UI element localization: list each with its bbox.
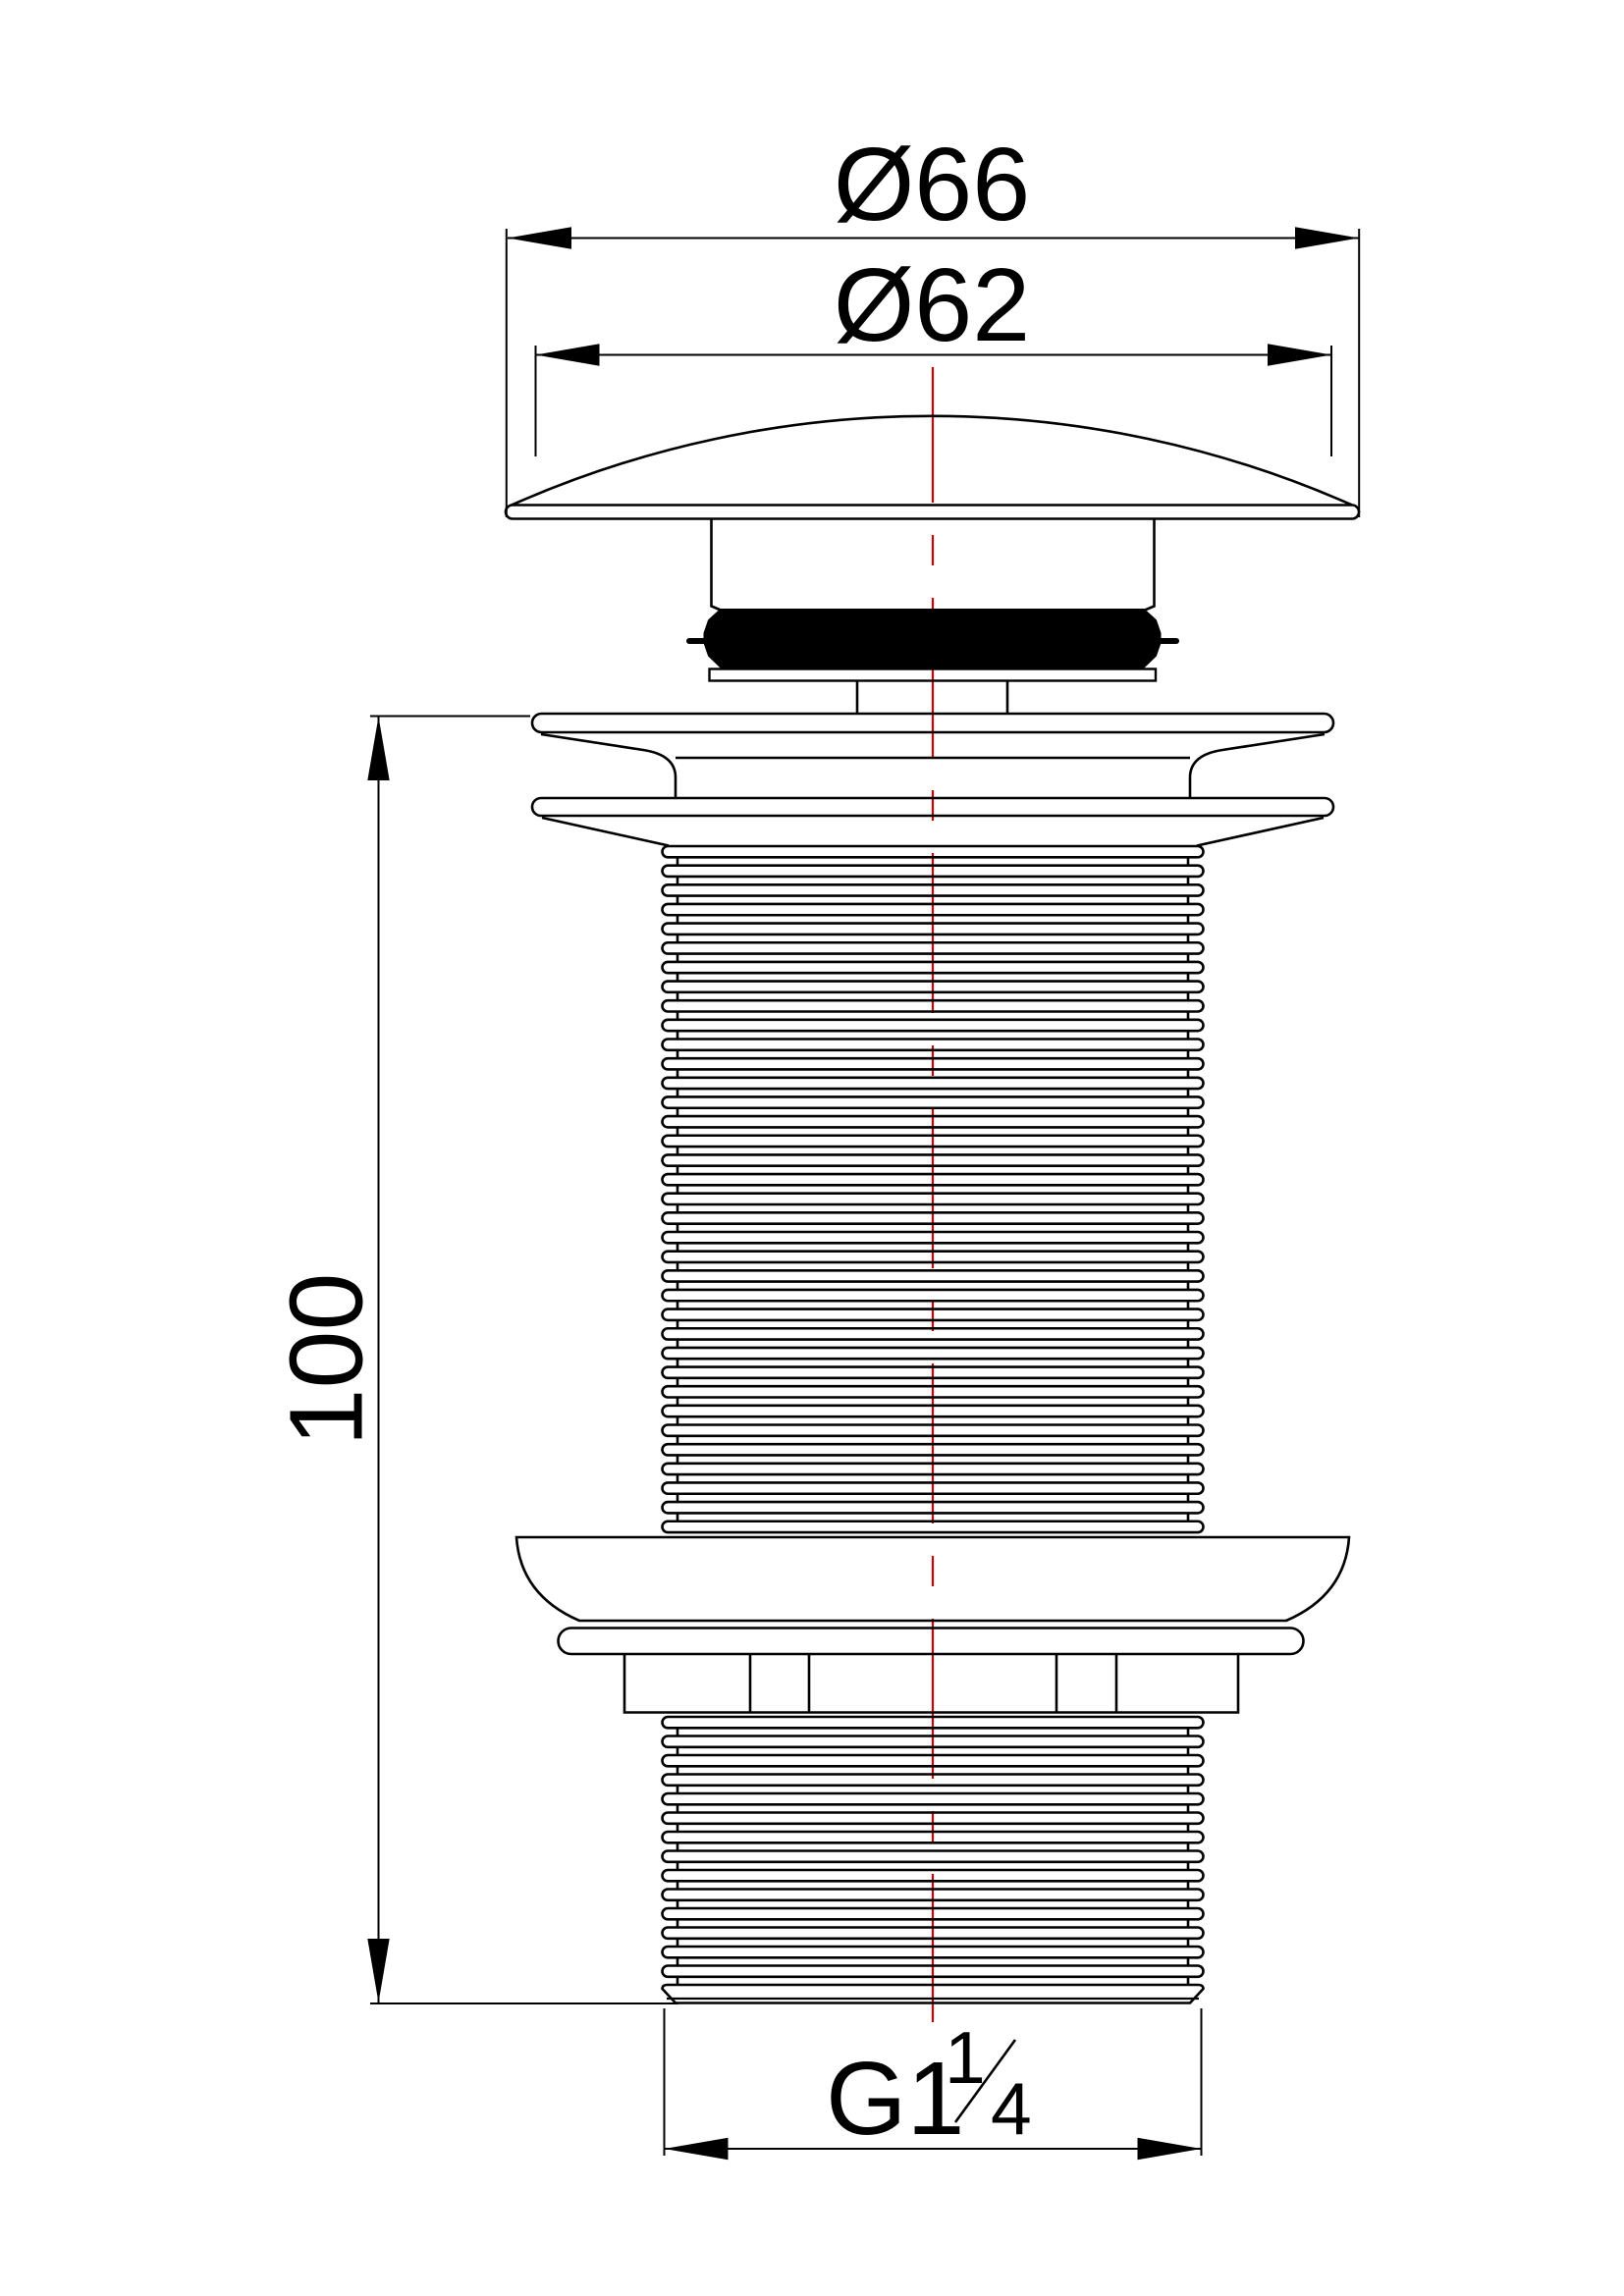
svg-text:4: 4 [991,2067,1032,2150]
svg-text:Ø66: Ø66 [834,127,1030,242]
svg-text:1: 1 [945,2016,986,2099]
svg-text:Ø62: Ø62 [834,247,1030,363]
svg-text:100: 100 [269,1273,385,1447]
